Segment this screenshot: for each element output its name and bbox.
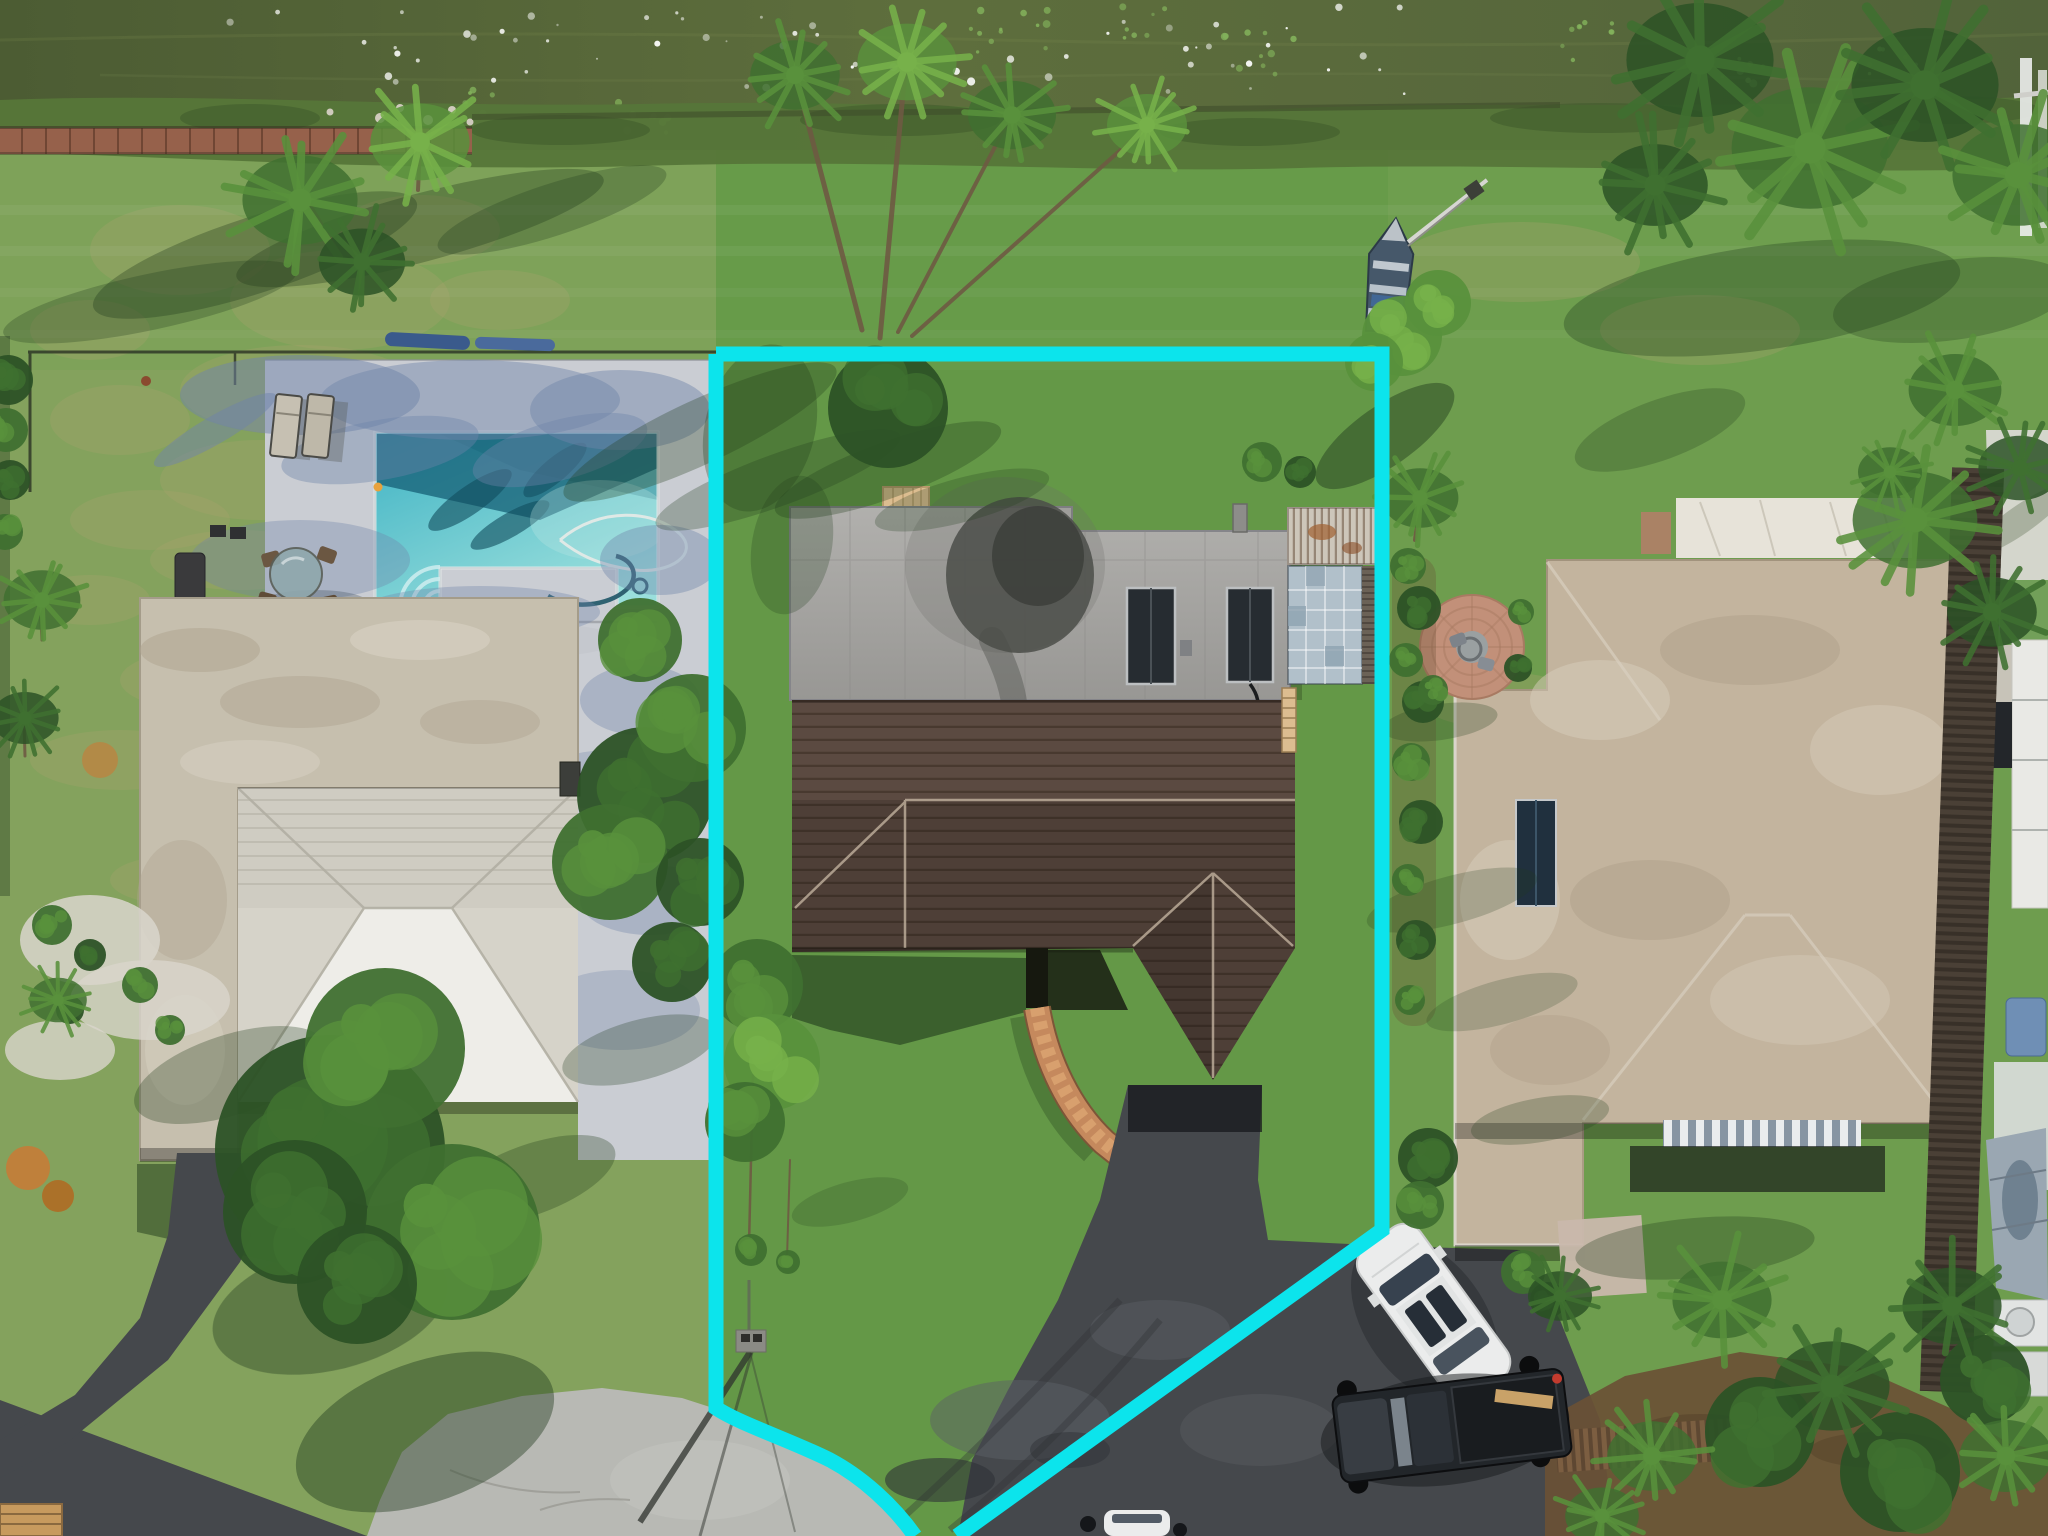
tree-canopy <box>552 804 668 920</box>
wooden-bench <box>0 1504 62 1536</box>
tree-canopy <box>632 922 712 1002</box>
roof-vent <box>1233 504 1247 532</box>
wooden-ladder <box>1282 688 1296 752</box>
tree-canopy <box>1504 654 1532 682</box>
tree-canopy <box>1242 442 1282 482</box>
tree-canopy <box>74 939 106 971</box>
pergola <box>1288 508 1378 564</box>
tree-canopy <box>32 905 72 945</box>
pool-float <box>374 483 383 492</box>
small-dog <box>141 376 151 386</box>
tree-canopy <box>1398 1128 1458 1188</box>
tree-canopy <box>1418 675 1448 705</box>
tree-canopy <box>776 1250 800 1274</box>
tree-canopy <box>155 1015 185 1045</box>
aerial-photo-canvas <box>0 0 2048 1536</box>
tree-canopy <box>1389 643 1423 677</box>
glass-block-patio <box>1288 566 1362 684</box>
bbq-grill <box>175 553 205 601</box>
tree-canopy <box>735 1234 767 1266</box>
tree-canopy <box>1399 800 1443 844</box>
tree-canopy <box>1397 586 1441 630</box>
aerial-photo <box>0 0 2048 1536</box>
slat-fence <box>1362 566 1376 684</box>
chaise-lounges <box>270 394 348 462</box>
tree-canopy <box>1396 1181 1444 1229</box>
tree-canopy <box>1284 456 1316 488</box>
tree-canopy <box>1392 743 1430 781</box>
tree-canopy <box>1345 333 1403 391</box>
tree-canopy <box>1390 548 1426 584</box>
blue-basket <box>2006 998 2046 1056</box>
ac-unit <box>560 762 580 796</box>
tree-canopy <box>1392 864 1424 896</box>
tree-canopy <box>1508 599 1534 625</box>
tree-canopy <box>1405 270 1471 336</box>
tree-canopy <box>122 967 158 1003</box>
tree-canopy <box>297 1224 417 1344</box>
tree-canopy <box>598 598 682 682</box>
tree-canopy <box>1396 920 1436 960</box>
entry-alcove <box>1026 948 1048 1008</box>
tree-canopy <box>1395 985 1425 1015</box>
